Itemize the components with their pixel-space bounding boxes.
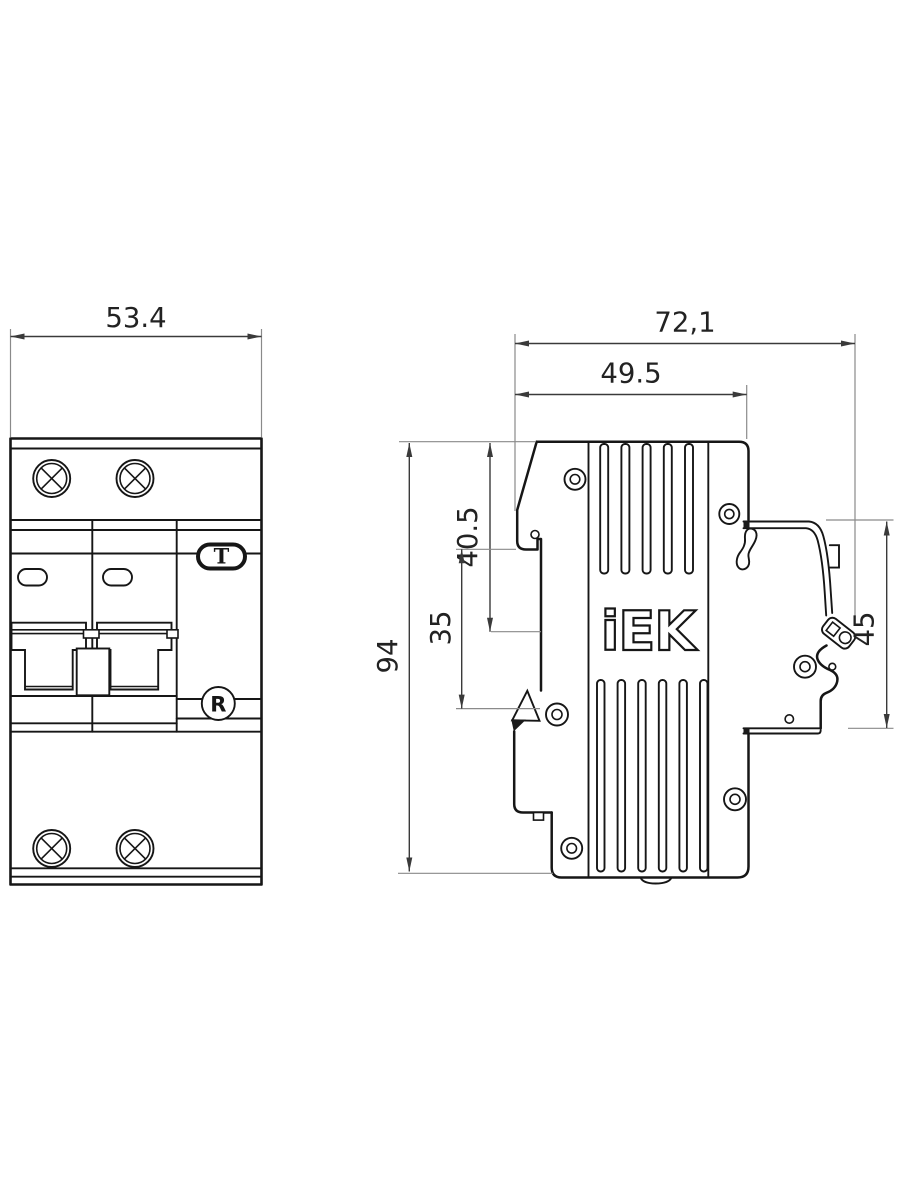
front-catch-wedge <box>511 719 526 731</box>
side-lower-front <box>514 731 552 812</box>
handle-tie-stub <box>167 630 178 638</box>
handle-tie-bar <box>84 630 100 638</box>
vent-slots-lower <box>597 680 708 872</box>
terminal-screw-top-right <box>117 460 154 497</box>
svg-text:40.5: 40.5 <box>452 506 484 567</box>
pin-hole <box>785 715 793 723</box>
din-clip-top <box>744 522 840 616</box>
registered-mark: R <box>202 687 235 720</box>
dim-upper-depth: 49.5 <box>515 358 747 440</box>
terminal-screw-top-left <box>33 460 70 497</box>
indicator-window-1 <box>18 569 47 586</box>
bottom-step-tab <box>534 813 544 821</box>
dimension-drawing-page: T R <box>0 0 900 1200</box>
latch-housing <box>817 646 837 729</box>
pin-hole <box>829 663 836 670</box>
din-clip-bottom <box>744 728 821 733</box>
kidney-slot <box>737 529 757 570</box>
rivet <box>794 656 816 678</box>
rivet <box>565 469 586 490</box>
interpole-block <box>77 649 110 696</box>
dim-top-to-rail: 40.5 <box>399 442 541 632</box>
test-button: T <box>198 544 245 569</box>
svg-text:72,1: 72,1 <box>654 307 715 339</box>
svg-text:45: 45 <box>849 612 881 647</box>
rivet <box>724 788 746 810</box>
front-catch-triangle <box>512 691 539 721</box>
terminal-screw-bottom-left <box>33 830 70 867</box>
front-view: T R <box>11 439 262 885</box>
svg-text:49.5: 49.5 <box>600 358 661 390</box>
dim-front-width: 53.4 <box>11 302 262 437</box>
vent-slots-upper <box>600 444 693 574</box>
drawing-canvas: T R <box>0 0 900 1200</box>
test-button-label: T <box>214 544 230 569</box>
indicator-window-2 <box>103 569 132 586</box>
side-bottom-edge <box>552 734 749 878</box>
dim-front-step: 35 <box>425 549 540 708</box>
svg-text:53.4: 53.4 <box>105 302 166 334</box>
rivet <box>561 838 582 859</box>
svg-text:94: 94 <box>372 639 404 674</box>
rivet <box>546 704 568 726</box>
clip-arm-bump <box>830 545 839 567</box>
pin-hole <box>531 531 539 539</box>
svg-text:35: 35 <box>425 611 457 646</box>
registered-mark-letter: R <box>210 693 226 717</box>
side-view: iEK <box>511 442 857 884</box>
terminal-screw-bottom-right <box>117 830 154 867</box>
rivet <box>719 504 739 524</box>
brand-logo: iEK <box>601 600 698 663</box>
side-front-profile <box>517 442 541 691</box>
